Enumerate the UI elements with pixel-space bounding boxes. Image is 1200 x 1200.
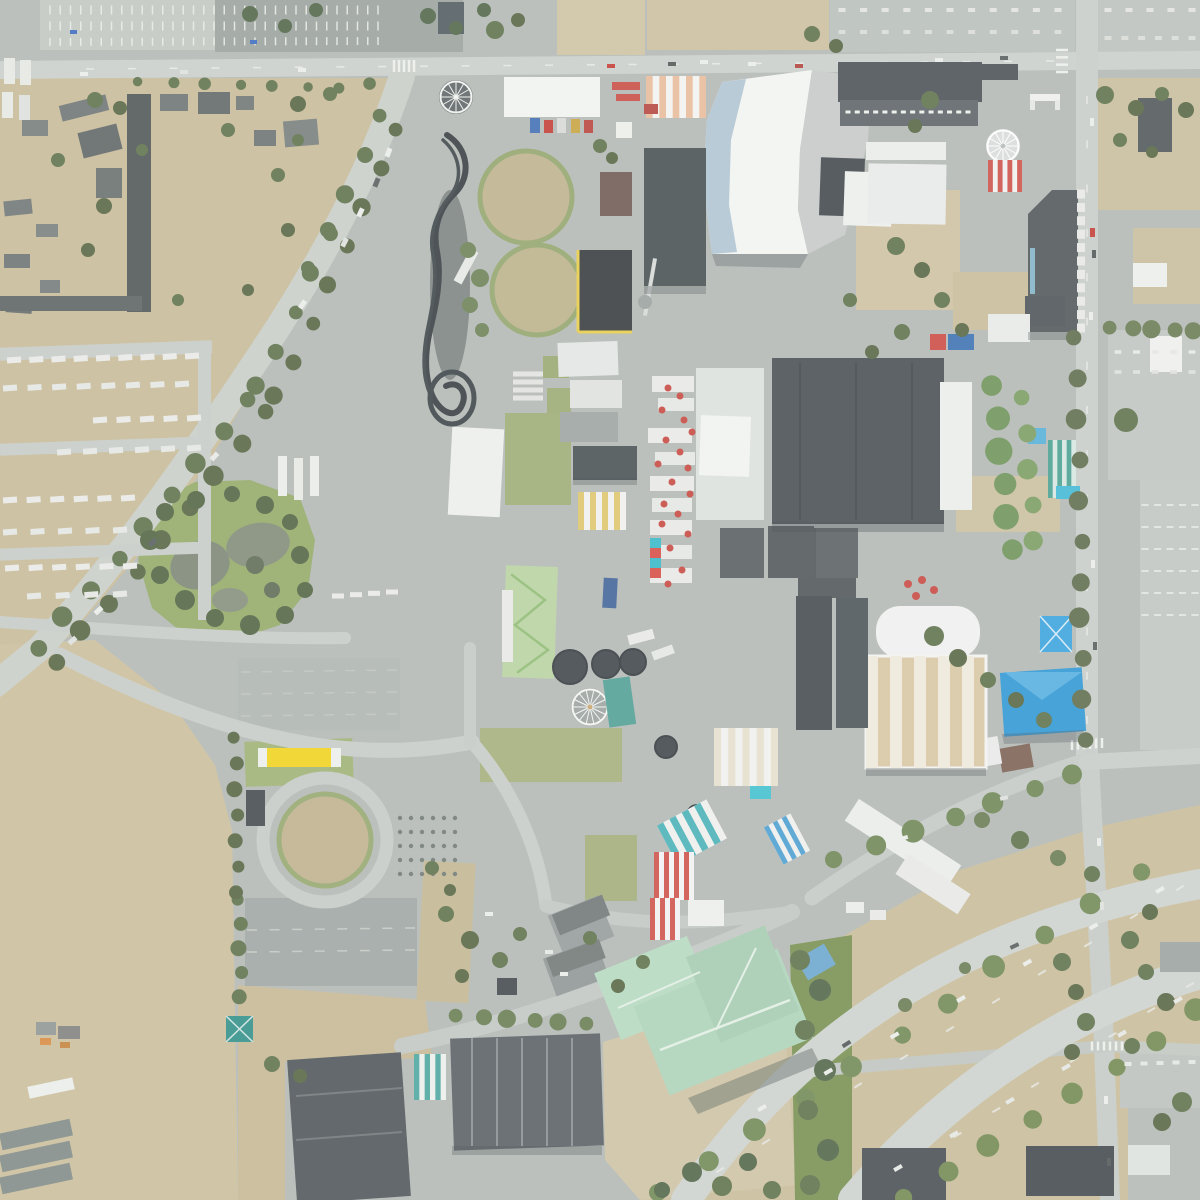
- photo-haze-overlay: [0, 0, 1200, 1200]
- overlay-layer: [0, 0, 1200, 1200]
- fairgrounds-aerial-photo: [0, 0, 1200, 1200]
- aerial-photo-viewport: Aerial satellite photograph of a county …: [0, 0, 1200, 1200]
